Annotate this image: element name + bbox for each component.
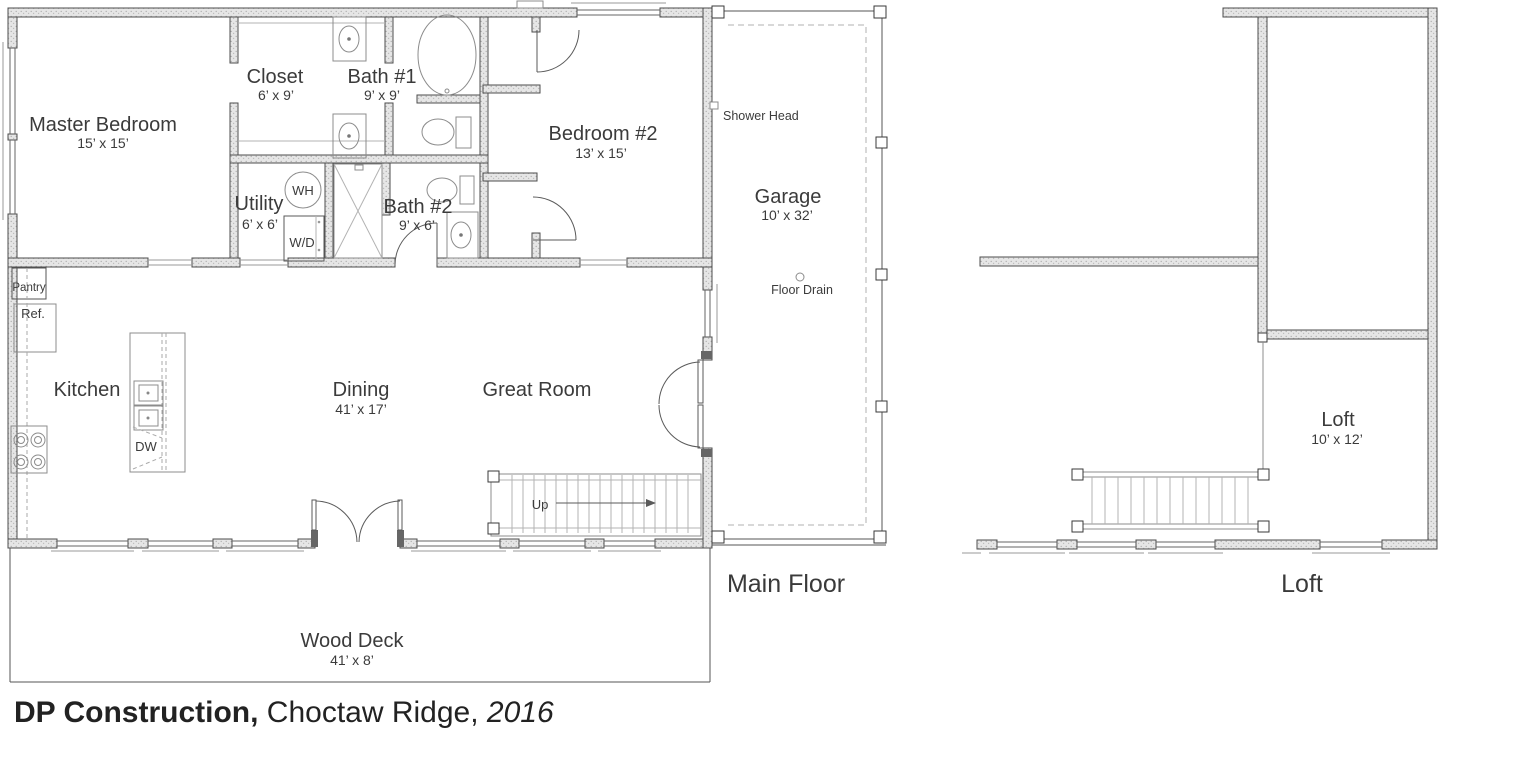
toilet-icon [422, 119, 454, 145]
label-shower-head: Shower Head [723, 109, 799, 123]
main-stairs [488, 471, 701, 536]
label-water-heater: WH [292, 183, 314, 198]
garage-structure [710, 6, 887, 545]
loft-windows [962, 542, 1390, 553]
label-master-bedroom: Master Bedroom [29, 114, 177, 136]
dims-loft-room: 10’ x 12’ [1311, 431, 1363, 447]
dims-bedroom-2: 13’ x 15’ [575, 145, 627, 161]
door-jamb [311, 530, 318, 547]
floor-drain-icon [796, 273, 804, 281]
shower-head-icon [355, 165, 363, 170]
label-dishwasher: DW [135, 439, 157, 454]
dims-garage: 10’ x 32’ [761, 207, 813, 223]
title-loft: Loft [1281, 570, 1323, 598]
shower-head-fixture [710, 102, 718, 109]
dims-dining: 41’ x 17’ [335, 401, 387, 417]
door-jamb [701, 449, 712, 457]
label-garage: Garage [755, 186, 822, 208]
railing-balusters [1092, 477, 1248, 524]
title-main-floor: Main Floor [727, 570, 845, 598]
label-wood-deck: Wood Deck [300, 630, 404, 652]
dims-bath-2: 9’ x 6’ [399, 217, 435, 233]
dims-closet: 6’ x 9’ [258, 87, 294, 103]
loft-walls [977, 8, 1437, 549]
floor-plan-drawing: Master Bedroom 15’ x 15’ Closet 6’ x 9’ … [0, 0, 1518, 782]
label-stairs-up: Up [532, 497, 549, 512]
caption-company: DP Construction, [14, 696, 258, 729]
label-washer-dryer: W/D [289, 235, 314, 250]
label-refrigerator: Ref. [21, 306, 45, 321]
toilet-tank [456, 117, 471, 148]
label-dining: Dining [333, 379, 390, 401]
label-bath-1: Bath #1 [348, 66, 417, 88]
label-loft-room: Loft [1321, 409, 1355, 431]
window-sill-top [517, 1, 543, 8]
door-jamb [397, 530, 404, 547]
label-closet: Closet [247, 66, 304, 88]
label-pantry: Pantry [12, 282, 45, 294]
door-jamb [701, 351, 712, 359]
floor-plan-page: Master Bedroom 15’ x 15’ Closet 6’ x 9’ … [0, 0, 1518, 782]
loft-stair-railing [1072, 469, 1269, 532]
dims-master-bedroom: 15’ x 15’ [77, 135, 129, 151]
label-utility: Utility [235, 193, 284, 215]
toilet-tank [460, 176, 474, 204]
label-great-room: Great Room [483, 379, 592, 401]
caption-location: Choctaw Ridge, [258, 696, 486, 729]
bathtub-icon [418, 15, 476, 95]
label-bath-2: Bath #2 [384, 196, 453, 218]
label-kitchen: Kitchen [54, 379, 121, 401]
label-bedroom-2: Bedroom #2 [549, 123, 658, 145]
drawing-caption: DP Construction, Choctaw Ridge, 2016 [14, 696, 554, 730]
dims-wood-deck: 41’ x 8’ [330, 652, 374, 668]
dims-bath-1: 9’ x 9’ [364, 87, 400, 103]
label-floor-drain: Floor Drain [771, 283, 833, 297]
caption-year: 2016 [487, 696, 554, 729]
dims-utility: 6’ x 6’ [242, 216, 278, 232]
